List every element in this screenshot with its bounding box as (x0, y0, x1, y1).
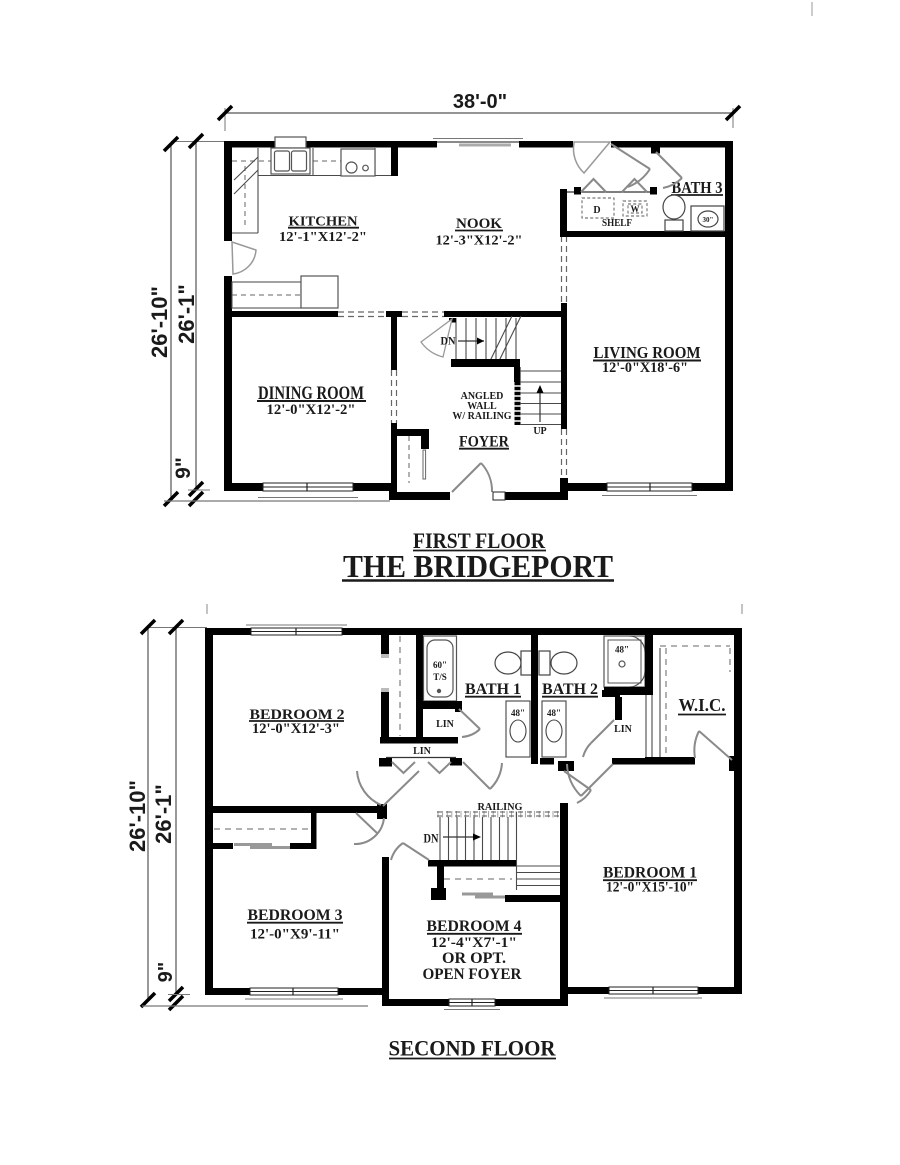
svg-text:12'-0"X12'-2": 12'-0"X12'-2" (267, 402, 356, 418)
svg-text:60": 60" (433, 660, 447, 670)
svg-text:DN: DN (424, 832, 439, 846)
svg-text:26'-10": 26'-10" (147, 286, 172, 358)
svg-text:48": 48" (547, 708, 561, 718)
svg-text:12'-0"X12'-3": 12'-0"X12'-3" (252, 721, 340, 737)
svg-text:9": 9" (155, 962, 177, 983)
svg-text:OPEN FOYER: OPEN FOYER (423, 966, 523, 983)
svg-text:12'-0"X9'-11": 12'-0"X9'-11" (250, 927, 340, 943)
svg-text:W/ RAILING: W/ RAILING (452, 411, 511, 422)
svg-text:30": 30" (703, 216, 714, 224)
svg-text:T/S: T/S (433, 672, 447, 682)
svg-text:12'-0"X15'-10": 12'-0"X15'-10" (606, 880, 694, 896)
svg-text:D: D (593, 205, 600, 216)
svg-text:26'-10": 26'-10" (125, 780, 150, 852)
svg-text:OR OPT.: OR OPT. (442, 950, 506, 967)
svg-text:26'-1": 26'-1" (151, 784, 176, 844)
svg-text:48": 48" (511, 708, 525, 718)
svg-text:48": 48" (615, 645, 629, 655)
svg-text:W: W (631, 204, 640, 214)
svg-text:12'-0"X18'-6": 12'-0"X18'-6" (602, 360, 688, 376)
svg-text:THE BRIDGEPORT: THE BRIDGEPORT (343, 548, 613, 584)
svg-text:BATH 2: BATH 2 (542, 681, 598, 698)
svg-text:LIN: LIN (413, 746, 432, 757)
svg-text:UP: UP (533, 426, 546, 437)
svg-text:W.I.C.: W.I.C. (679, 695, 726, 715)
svg-text:26'-1": 26'-1" (174, 284, 199, 344)
svg-text:BEDROOM 4: BEDROOM 4 (427, 918, 522, 935)
svg-text:12'-4"X7'-1": 12'-4"X7'-1" (431, 935, 517, 951)
svg-text:DN: DN (441, 334, 456, 348)
svg-text:LIN: LIN (436, 719, 455, 730)
svg-text:SECOND FLOOR: SECOND FLOOR (389, 1036, 557, 1061)
svg-text:BATH 1: BATH 1 (465, 681, 521, 698)
svg-text:BEDROOM 3: BEDROOM 3 (248, 907, 343, 924)
svg-text:12'-3"X12'-2": 12'-3"X12'-2" (436, 234, 523, 249)
svg-text:38'-0": 38'-0" (453, 91, 507, 113)
svg-text:9": 9" (172, 457, 195, 479)
svg-text:SHELF: SHELF (602, 218, 632, 229)
svg-text:12'-1"X12'-2": 12'-1"X12'-2" (279, 230, 367, 245)
svg-text:LIN: LIN (614, 724, 633, 735)
